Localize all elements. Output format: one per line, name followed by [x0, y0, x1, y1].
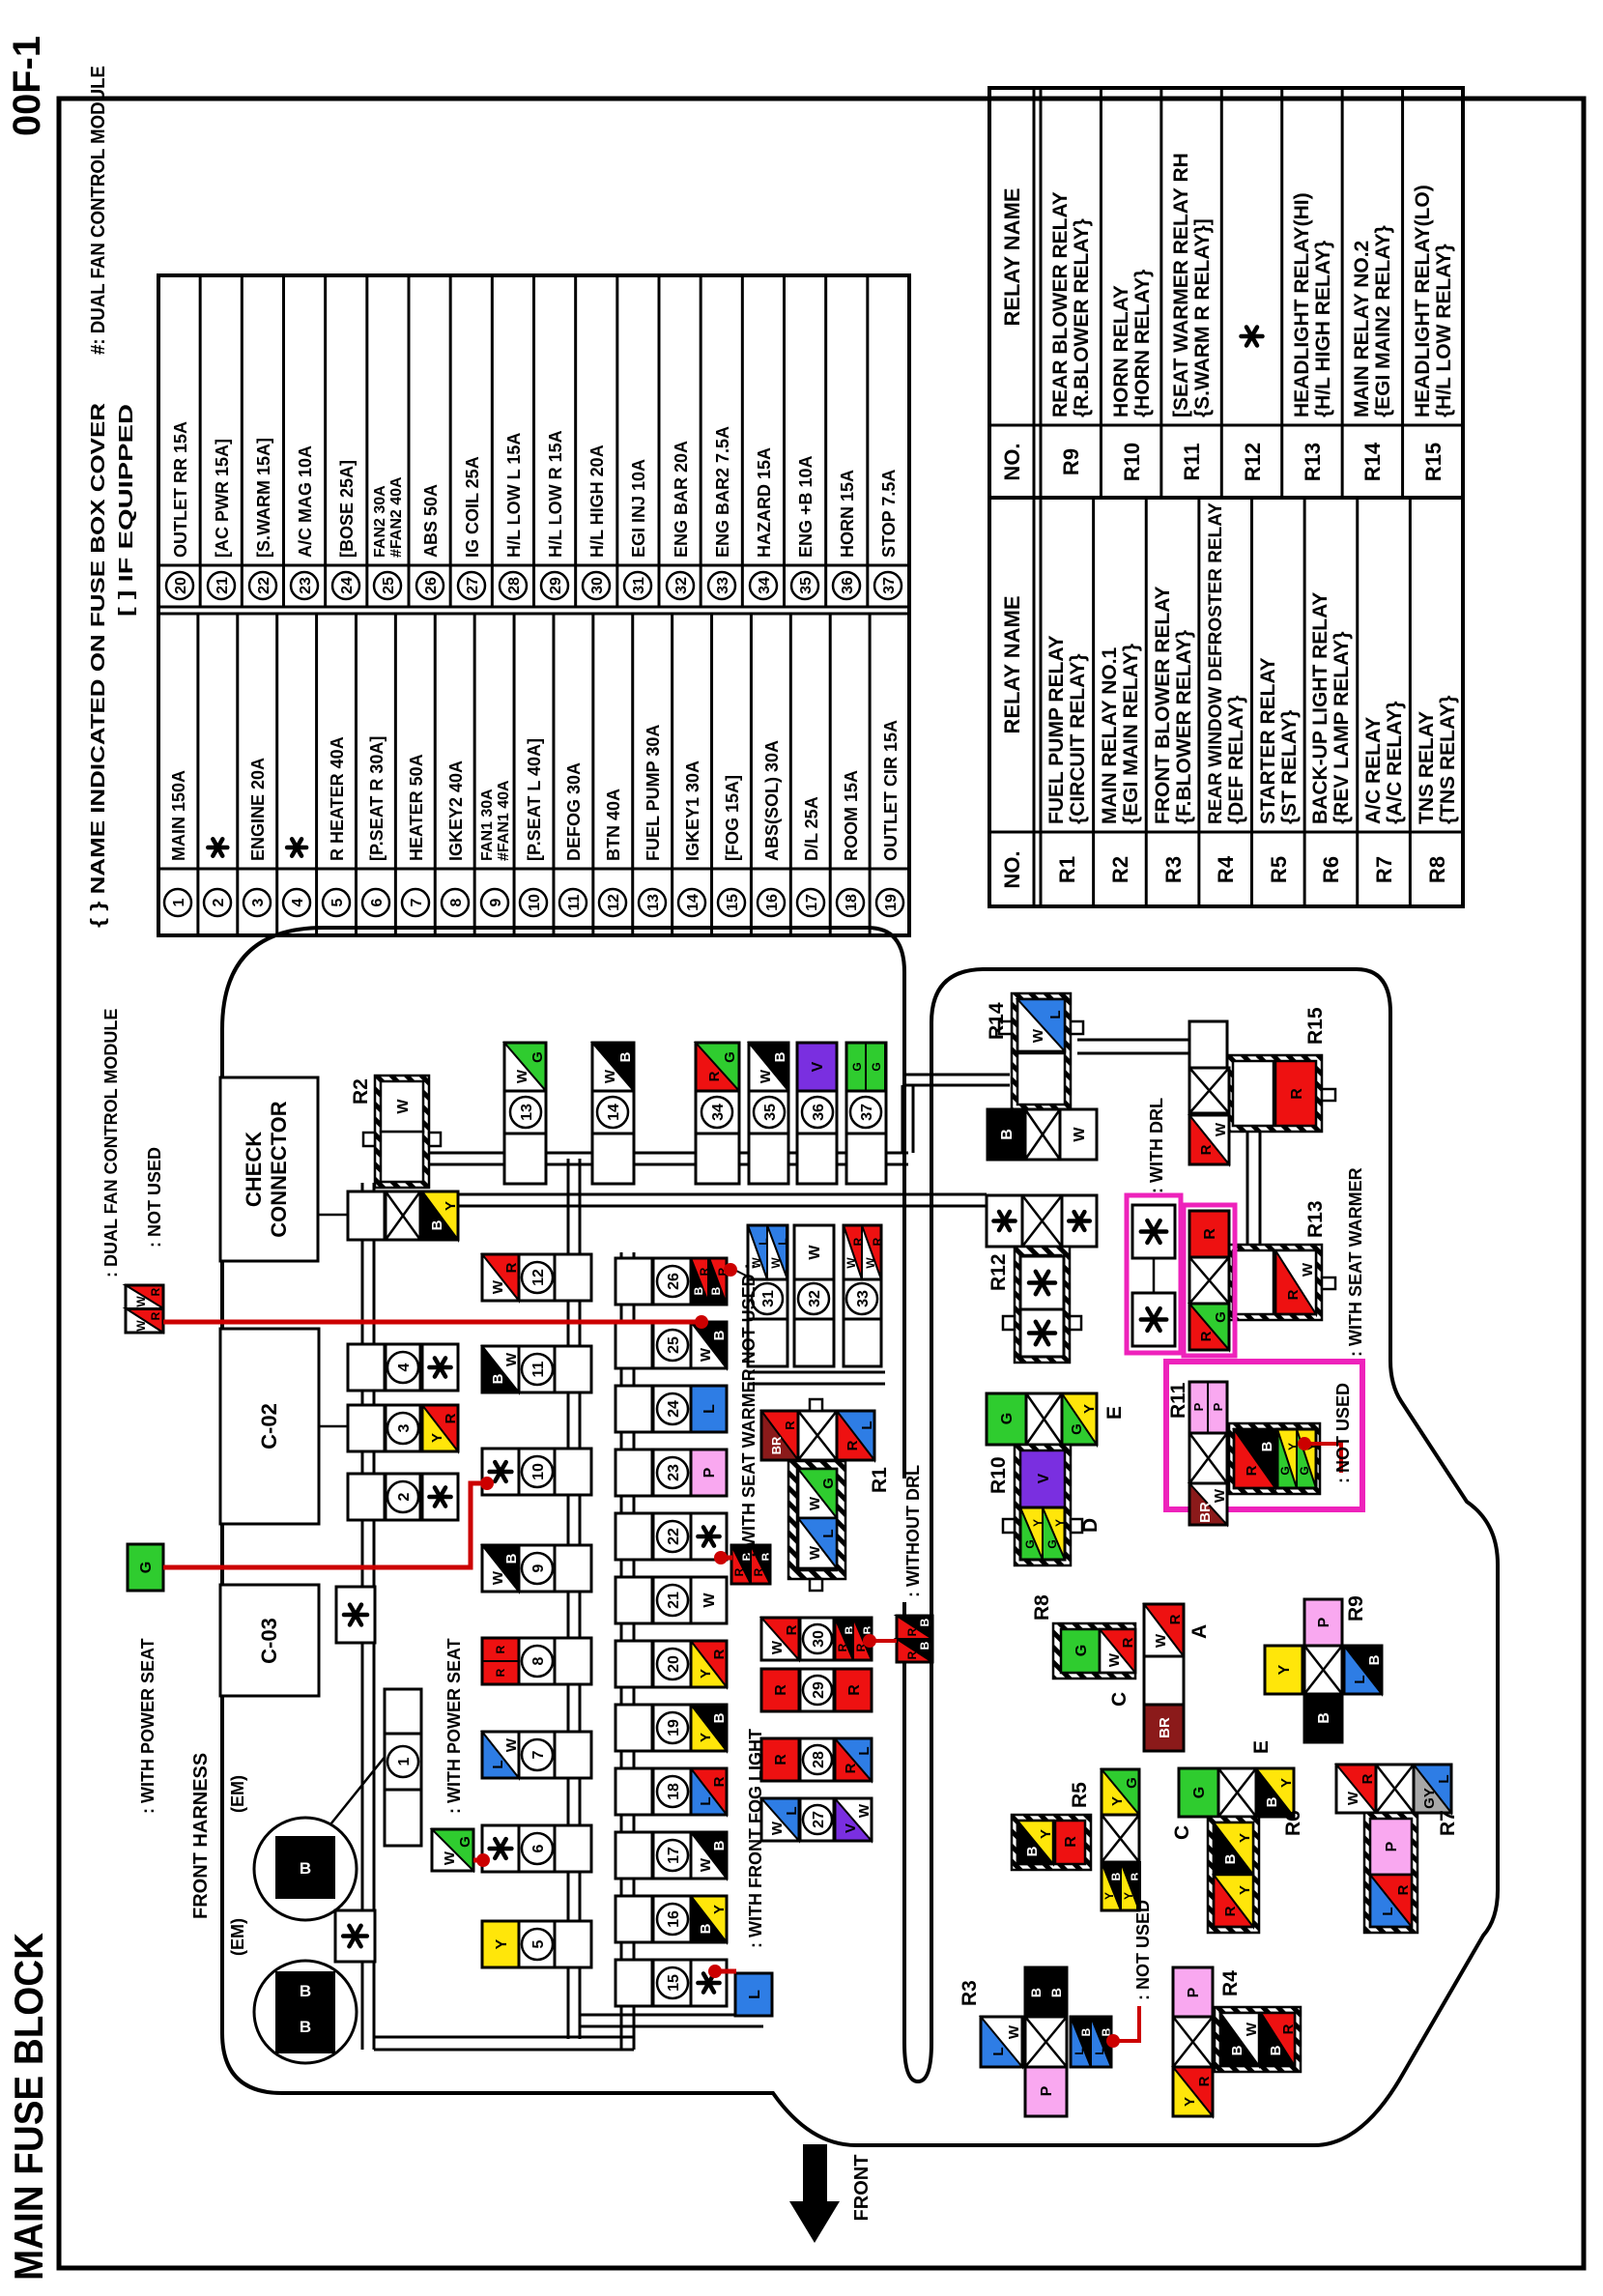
svg-text:REAR WINDOW DEFROSTER RELAY: REAR WINDOW DEFROSTER RELAY	[1206, 502, 1226, 824]
svg-text:W: W	[844, 1257, 858, 1269]
svg-text:R6: R6	[1319, 856, 1343, 883]
svg-text:ENG BAR 20A: ENG BAR 20A	[672, 441, 691, 558]
svg-text:Y: Y	[1109, 1796, 1126, 1806]
svg-text:(EM): (EM)	[228, 1775, 247, 1813]
svg-text:R: R	[1063, 1836, 1079, 1848]
svg-text:G: G	[820, 1478, 837, 1489]
svg-text:W: W	[856, 1803, 873, 1818]
svg-text:IG COIL 25A: IG COIL 25A	[463, 456, 482, 558]
svg-text:L: L	[747, 1990, 763, 1999]
svg-text:G: G	[1278, 1466, 1292, 1475]
svg-text:R14: R14	[986, 1002, 1008, 1040]
svg-text:{F.BLOWER RELAY}: {F.BLOWER RELAY}	[1173, 630, 1195, 824]
svg-text:E: E	[1250, 1740, 1273, 1754]
svg-text:FAN1 30A: FAN1 30A	[479, 789, 496, 861]
svg-text:R15: R15	[1304, 1007, 1327, 1045]
svg-text:B: B	[711, 1712, 728, 1723]
svg-text:26: 26	[423, 577, 440, 594]
svg-text:L: L	[1073, 2048, 1086, 2054]
svg-text:B: B	[617, 1051, 634, 1062]
svg-text:B: B	[711, 1840, 728, 1851]
svg-text:G: G	[1045, 1539, 1059, 1548]
svg-text:G: G	[1298, 1466, 1311, 1475]
svg-text:W: W	[442, 1851, 458, 1865]
svg-text:B: B	[1048, 1988, 1064, 1997]
svg-text:W: W	[514, 1069, 530, 1083]
svg-text:R: R	[494, 1645, 507, 1653]
svg-text:14: 14	[685, 894, 701, 911]
svg-text:C-03: C-03	[257, 1618, 281, 1664]
svg-text:: WITH POWER SEAT: : WITH POWER SEAT	[138, 1638, 157, 1814]
svg-text:R1: R1	[869, 1467, 891, 1493]
svg-text:V: V	[810, 1061, 826, 1072]
svg-text:P: P	[1384, 1841, 1400, 1851]
svg-text:Y: Y	[1081, 1404, 1098, 1414]
svg-text:G: G	[1023, 1539, 1037, 1548]
svg-text:R: R	[1285, 1289, 1302, 1300]
svg-text:L: L	[1380, 1907, 1396, 1915]
svg-text:R: R	[494, 1668, 507, 1677]
svg-text:3: 3	[250, 898, 267, 906]
svg-text:R: R	[836, 1643, 849, 1651]
svg-text:GY: GY	[1421, 1788, 1438, 1809]
svg-text:R: R	[1280, 2023, 1297, 2034]
svg-text:B: B	[918, 1641, 931, 1650]
svg-text:W: W	[1244, 2022, 1260, 2036]
svg-text:5: 5	[530, 1939, 547, 1948]
svg-text:6: 6	[369, 898, 386, 906]
svg-text:33: 33	[715, 577, 731, 594]
svg-text:R: R	[443, 1413, 459, 1423]
svg-text:: NOT USED: : NOT USED	[1333, 1383, 1353, 1483]
svg-text:BR: BR	[1157, 1717, 1173, 1738]
svg-text:22: 22	[666, 1528, 682, 1545]
svg-text:HORN RELAY: HORN RELAY	[1110, 285, 1132, 417]
svg-text:R: R	[784, 1624, 800, 1635]
svg-text:R: R	[773, 1754, 789, 1765]
svg-text:W: W	[1106, 1652, 1123, 1667]
svg-text:30: 30	[811, 1630, 827, 1648]
svg-text:G: G	[457, 1836, 473, 1848]
svg-text:17: 17	[804, 894, 820, 911]
svg-text:R: R	[1120, 1637, 1136, 1648]
svg-text:R13: R13	[1304, 1200, 1327, 1238]
svg-text:ENGINE 20A: ENGINE 20A	[248, 758, 268, 861]
svg-text:B: B	[772, 1051, 788, 1062]
svg-text:B: B	[918, 1618, 931, 1626]
svg-text:R14: R14	[1360, 442, 1385, 481]
svg-text:#FAN1 40A: #FAN1 40A	[496, 780, 512, 861]
svg-text:2: 2	[396, 1492, 413, 1501]
svg-text:19: 19	[883, 894, 900, 911]
svg-text:R: R	[732, 1567, 746, 1576]
svg-text:G: G	[850, 1062, 864, 1071]
svg-text:[P.SEAT R 30A]: [P.SEAT R 30A]	[367, 736, 386, 861]
svg-text:8: 8	[530, 1656, 547, 1665]
svg-text:W: W	[769, 1257, 783, 1269]
svg-text:18: 18	[844, 894, 860, 911]
svg-text:R: R	[711, 1776, 728, 1787]
svg-text:P: P	[1186, 1987, 1202, 1997]
svg-text:7: 7	[409, 898, 425, 906]
svg-text:Y: Y	[1038, 1829, 1054, 1839]
svg-text:B: B	[300, 1982, 311, 2000]
svg-text:R9: R9	[1059, 448, 1083, 475]
svg-text:W: W	[807, 1545, 823, 1560]
svg-text:5: 5	[329, 898, 346, 906]
svg-text:B: B	[709, 1286, 723, 1295]
svg-text:W: W	[864, 1257, 877, 1269]
svg-text:C: C	[1108, 1692, 1131, 1707]
svg-text:4: 4	[290, 898, 306, 906]
svg-text:35: 35	[762, 1104, 779, 1121]
svg-text:L: L	[490, 1760, 506, 1768]
svg-text:{H/L HIGH RELAY}: {H/L HIGH RELAY}	[1312, 241, 1334, 417]
svg-text:24: 24	[666, 1400, 682, 1418]
svg-text:25: 25	[666, 1336, 682, 1354]
svg-text:G: G	[870, 1062, 883, 1071]
svg-text:B: B	[1264, 1796, 1280, 1807]
svg-text:L: L	[990, 2047, 1007, 2055]
svg-text:R11: R11	[1180, 443, 1204, 480]
svg-text:L: L	[856, 1746, 873, 1755]
svg-text:W: W	[1300, 1262, 1316, 1277]
svg-text:00F-1: 00F-1	[6, 36, 48, 136]
svg-text:P: P	[1191, 1402, 1206, 1411]
svg-text:B: B	[300, 2018, 311, 2036]
svg-text:R: R	[1202, 1228, 1218, 1240]
svg-text:EGI INJ 10A: EGI INJ 10A	[629, 459, 648, 558]
svg-text:BACK-UP LIGHT RELAY: BACK-UP LIGHT RELAY	[1309, 592, 1331, 824]
svg-text:{EGI MAIN2 RELAY}: {EGI MAIN2 RELAY}	[1372, 225, 1394, 417]
svg-text:R: R	[1289, 1088, 1305, 1100]
svg-text:L: L	[859, 1421, 875, 1429]
svg-text:: NOT USED: : NOT USED	[1133, 1900, 1153, 2000]
svg-text:L: L	[784, 1806, 800, 1815]
svg-text:STOP 7.5A: STOP 7.5A	[879, 470, 899, 558]
svg-text:B: B	[1222, 1853, 1239, 1864]
svg-text:HEADLIGHT RELAY(LO): HEADLIGHT RELAY(LO)	[1412, 185, 1434, 417]
svg-text:W: W	[503, 1737, 520, 1752]
svg-text:RELAY NAME: RELAY NAME	[1000, 595, 1024, 733]
svg-text:: WITH SEAT WARMER: : WITH SEAT WARMER	[1346, 1167, 1365, 1357]
svg-text:{H/L LOW RELAY}: {H/L LOW RELAY}	[1433, 244, 1455, 417]
svg-text:H/L HIGH 20A: H/L HIGH 20A	[587, 445, 607, 558]
svg-text:W: W	[134, 1320, 148, 1332]
svg-text:{EGI MAIN RELAY}: {EGI MAIN RELAY}	[1120, 644, 1142, 824]
svg-text:R13: R13	[1301, 443, 1325, 481]
svg-text:35: 35	[798, 577, 815, 594]
svg-text:B: B	[490, 1373, 506, 1384]
svg-text:R5: R5	[1069, 1782, 1091, 1808]
svg-text:{CIRCUIT RELAY}: {CIRCUIT RELAY}	[1067, 653, 1089, 824]
svg-text:4: 4	[396, 1363, 413, 1371]
svg-text:[BOSE 25A]: [BOSE 25A]	[337, 460, 357, 558]
svg-text:29: 29	[548, 577, 564, 594]
svg-text:D: D	[1079, 1518, 1102, 1533]
svg-text:Y: Y	[1278, 1778, 1295, 1788]
svg-text:21: 21	[666, 1592, 682, 1609]
svg-text:R: R	[1198, 1144, 1215, 1155]
svg-text:BTN 40A: BTN 40A	[604, 789, 623, 861]
svg-text:16: 16	[666, 1910, 682, 1928]
svg-text:18: 18	[666, 1783, 682, 1800]
svg-text:R7: R7	[1372, 856, 1396, 883]
svg-text:R: R	[1222, 1906, 1239, 1916]
svg-text:W: W	[807, 1245, 823, 1260]
svg-text:A/C RELAY: A/C RELAY	[1362, 717, 1385, 824]
svg-text:6: 6	[530, 1844, 547, 1852]
svg-text:37: 37	[881, 577, 898, 594]
svg-text:W: W	[807, 1496, 823, 1510]
svg-text:MAIN RELAY NO.1: MAIN RELAY NO.1	[1099, 646, 1121, 824]
svg-text:OUTLET RR 15A: OUTLET RR 15A	[171, 421, 190, 558]
svg-text:[P.SEAT L 40A]: [P.SEAT L 40A]	[525, 738, 544, 861]
svg-text:P: P	[1211, 1402, 1225, 1411]
svg-text:HEADLIGHT RELAY(HI): HEADLIGHT RELAY(HI)	[1291, 192, 1313, 417]
svg-text:{HORN RELAY}: {HORN RELAY}	[1131, 270, 1154, 417]
svg-text:33: 33	[855, 1290, 872, 1307]
svg-text:1: 1	[171, 898, 187, 906]
svg-text:27: 27	[811, 1811, 827, 1828]
svg-text:#: DUAL FAN CONTROL MODULE: #: DUAL FAN CONTROL MODULE	[88, 66, 109, 355]
svg-text:L: L	[1352, 1675, 1368, 1683]
svg-text:IGKEY1 30A: IGKEY1 30A	[683, 761, 702, 861]
svg-text:B: B	[1268, 2045, 1284, 2055]
svg-text:B: B	[999, 1129, 1016, 1140]
svg-text:R: R	[844, 1440, 861, 1450]
svg-text:R3: R3	[959, 1980, 981, 2006]
svg-text:3: 3	[396, 1423, 413, 1432]
svg-text:TNS RELAY: TNS RELAY	[1416, 711, 1438, 824]
svg-text:[SEAT WARMER RELAY RH: [SEAT WARMER RELAY RH	[1170, 153, 1192, 417]
svg-text:9: 9	[530, 1564, 547, 1572]
svg-text:B: B	[300, 1859, 311, 1878]
svg-text:Y: Y	[1102, 1892, 1116, 1900]
svg-text:31: 31	[760, 1290, 777, 1307]
svg-text:[S.WARM 15A]: [S.WARM 15A]	[254, 438, 273, 558]
svg-text:R: R	[783, 1421, 797, 1430]
svg-text:: WITH DRL: : WITH DRL	[1147, 1098, 1166, 1193]
svg-text:FUEL PUMP RELAY: FUEL PUMP RELAY	[1045, 635, 1068, 824]
svg-text:G: G	[1073, 1645, 1090, 1656]
svg-text:P: P	[1039, 2085, 1055, 2096]
svg-text:29: 29	[811, 1681, 827, 1699]
svg-text:R: R	[711, 1649, 728, 1659]
svg-text:R15: R15	[1421, 443, 1446, 481]
svg-text:R2: R2	[350, 1078, 372, 1105]
svg-text:R11: R11	[1167, 1382, 1189, 1419]
svg-text:{ST RELAY}: {ST RELAY}	[1278, 710, 1301, 824]
svg-text:{ } NAME INDICATED ON FUSE BOX: { } NAME INDICATED ON FUSE BOX COVER	[88, 402, 109, 928]
svg-text:2: 2	[211, 898, 227, 906]
svg-text:13: 13	[519, 1104, 535, 1121]
svg-text:CONNECTOR: CONNECTOR	[267, 1101, 291, 1237]
svg-text:W: W	[503, 1352, 520, 1366]
svg-text:27: 27	[465, 577, 481, 594]
svg-text:FRONT HARNESS: FRONT HARNESS	[190, 1753, 212, 1919]
svg-text:13: 13	[645, 894, 662, 911]
svg-text:R: R	[773, 1684, 789, 1696]
svg-text:A/C MAG 10A: A/C MAG 10A	[296, 445, 315, 558]
svg-text:17: 17	[666, 1847, 682, 1864]
svg-text:: NOT USED: : NOT USED	[145, 1147, 164, 1248]
svg-text:W: W	[490, 1570, 506, 1585]
svg-text:W: W	[769, 1821, 786, 1835]
svg-text:25: 25	[381, 577, 397, 594]
svg-text:32: 32	[673, 577, 690, 594]
svg-text:[ ] IF EQUIPPED: [ ] IF EQUIPPED	[116, 404, 137, 617]
svg-text:W: W	[1153, 1633, 1169, 1648]
svg-text:R8: R8	[1031, 1594, 1053, 1621]
svg-text:W: W	[698, 1857, 714, 1872]
svg-text:G: G	[138, 1562, 155, 1573]
svg-text:P: P	[1316, 1617, 1332, 1627]
svg-text:B: B	[1229, 2045, 1245, 2055]
svg-text:STARTER RELAY: STARTER RELAY	[1257, 657, 1279, 824]
svg-text:ABS(SOL) 30A: ABS(SOL) 30A	[762, 740, 782, 861]
svg-text:34: 34	[710, 1104, 727, 1121]
svg-text:H/L LOW L 15A: H/L LOW L 15A	[504, 433, 524, 558]
svg-text:R4: R4	[1219, 1970, 1242, 1996]
svg-text:R5: R5	[1267, 856, 1291, 883]
svg-text:CHECK: CHECK	[242, 1132, 266, 1207]
svg-text:P: P	[701, 1467, 718, 1478]
svg-text:L: L	[701, 1404, 718, 1414]
svg-text:W: W	[1212, 1488, 1228, 1503]
svg-text:B: B	[1028, 1988, 1044, 1997]
svg-text:D/L 25A: D/L 25A	[802, 796, 821, 861]
svg-text:B: B	[1259, 1441, 1275, 1451]
svg-text:(EM): (EM)	[228, 1918, 247, 1956]
svg-text:B: B	[711, 1330, 728, 1340]
svg-text:G: G	[1213, 1311, 1229, 1323]
svg-text:21: 21	[215, 577, 231, 594]
svg-text:31: 31	[631, 577, 647, 594]
svg-text:22: 22	[256, 577, 272, 594]
svg-text:R: R	[843, 1763, 859, 1773]
svg-text:W: W	[1006, 2024, 1022, 2039]
svg-text:11: 11	[530, 1361, 547, 1377]
svg-text:R: R	[846, 1684, 863, 1696]
svg-text:OUTLET CIR 15A: OUTLET CIR 15A	[881, 720, 901, 861]
svg-text:Y: Y	[1276, 1664, 1293, 1675]
svg-text:W: W	[769, 1640, 786, 1654]
svg-text:ROOM 15A: ROOM 15A	[842, 770, 861, 861]
svg-text:R: R	[1196, 2076, 1213, 2086]
svg-text:MAIN FUSE BLOCK: MAIN FUSE BLOCK	[6, 1933, 51, 2281]
svg-text:FRONT BLOWER RELAY: FRONT BLOWER RELAY	[1152, 586, 1174, 824]
svg-text:Y: Y	[494, 1938, 510, 1949]
svg-text:C: C	[1171, 1825, 1193, 1840]
svg-text:R: R	[1360, 1773, 1376, 1784]
svg-text:FUEL PUMP 30A: FUEL PUMP 30A	[644, 725, 663, 861]
svg-text:B: B	[503, 1553, 520, 1564]
svg-text:G: G	[1191, 1787, 1208, 1798]
svg-text:R: R	[1167, 1614, 1184, 1624]
svg-text:30: 30	[589, 577, 606, 594]
svg-text:Y: Y	[443, 1201, 459, 1211]
svg-text:{R.BLOWER RELAY}: {R.BLOWER RELAY}	[1071, 218, 1093, 417]
svg-text:R: R	[752, 1567, 765, 1576]
svg-text:R6: R6	[1282, 1810, 1304, 1836]
svg-text:16: 16	[764, 894, 781, 911]
svg-text:20: 20	[666, 1655, 682, 1673]
svg-text:L: L	[820, 1529, 837, 1537]
svg-text:W: W	[602, 1069, 618, 1083]
svg-text:14: 14	[606, 1104, 622, 1121]
svg-text:ABS 50A: ABS 50A	[421, 484, 441, 558]
svg-text:: DUAL FAN CONTROL MODULE: : DUAL FAN CONTROL MODULE	[101, 1009, 121, 1277]
svg-text:REAR BLOWER RELAY: REAR BLOWER RELAY	[1049, 191, 1072, 417]
svg-text:[FOG 15A]: [FOG 15A]	[723, 775, 742, 861]
svg-text:37: 37	[859, 1104, 875, 1121]
svg-text:W: W	[1213, 1122, 1229, 1136]
svg-text:Y: Y	[698, 1669, 714, 1679]
svg-text:DEFOG 30A: DEFOG 30A	[564, 762, 584, 861]
svg-text:MAIN 150A: MAIN 150A	[169, 770, 188, 861]
svg-text:W: W	[134, 1296, 148, 1307]
svg-text:#FAN2 40A: #FAN2 40A	[388, 476, 405, 558]
svg-text:B: B	[1316, 1712, 1332, 1724]
svg-text:10: 10	[527, 894, 543, 911]
svg-text:ENG +B 10A: ENG +B 10A	[796, 455, 816, 558]
svg-text:36: 36	[811, 1104, 827, 1121]
svg-text:R10: R10	[1120, 443, 1144, 481]
svg-text:W: W	[758, 1069, 774, 1083]
svg-text:: WITH POWER SEAT: : WITH POWER SEAT	[444, 1638, 464, 1814]
svg-text:RELAY NAME: RELAY NAME	[1000, 187, 1024, 326]
svg-text:34: 34	[757, 577, 773, 594]
svg-text:W: W	[1030, 1028, 1046, 1043]
svg-text:E: E	[1103, 1406, 1126, 1420]
svg-text:32: 32	[807, 1290, 823, 1307]
svg-text:C-02: C-02	[257, 1403, 281, 1449]
svg-text:: WITH SEAT WARMER NOT USED :: : WITH SEAT WARMER NOT USED :	[739, 1263, 759, 1558]
svg-text:{A/C RELAY}: {A/C RELAY}	[1384, 701, 1406, 824]
svg-text:V: V	[1036, 1473, 1052, 1483]
svg-text:G: G	[530, 1051, 546, 1063]
svg-text:10: 10	[530, 1463, 547, 1480]
svg-text:R HEATER 40A: R HEATER 40A	[328, 736, 347, 861]
svg-text:R9: R9	[1345, 1595, 1367, 1622]
svg-text:R8: R8	[1425, 856, 1449, 883]
svg-text:R: R	[1244, 1465, 1260, 1476]
svg-text:NO.: NO.	[1000, 443, 1024, 480]
svg-text:V: V	[843, 1823, 859, 1833]
svg-text:MAIN RELAY NO.2: MAIN RELAY NO.2	[1351, 241, 1373, 417]
svg-text:HAZARD 15A: HAZARD 15A	[755, 447, 774, 558]
svg-text:G: G	[722, 1051, 738, 1063]
svg-text:36: 36	[840, 577, 856, 594]
svg-text:: WITHOUT DRL: : WITHOUT DRL	[903, 1465, 923, 1597]
svg-text:1: 1	[396, 1757, 413, 1765]
svg-text:15: 15	[725, 894, 741, 911]
svg-text:FAN2 30A: FAN2 30A	[372, 485, 388, 558]
svg-text:12: 12	[530, 1269, 547, 1286]
svg-text:24: 24	[339, 577, 356, 594]
svg-text:23: 23	[666, 1464, 682, 1481]
svg-text:B: B	[692, 1286, 705, 1295]
svg-text:: WITH FRONT FOG LIGHT: : WITH FRONT FOG LIGHT	[746, 1729, 765, 1948]
svg-text:R4: R4	[1214, 855, 1238, 883]
svg-text:{DEF RELAY}: {DEF RELAY}	[1225, 696, 1247, 824]
svg-text:HEATER 50A: HEATER 50A	[407, 754, 426, 861]
svg-text:Y: Y	[1237, 1885, 1253, 1895]
svg-text:R3: R3	[1161, 856, 1186, 883]
svg-text:G: G	[1124, 1777, 1140, 1789]
svg-text:A: A	[1188, 1624, 1211, 1639]
